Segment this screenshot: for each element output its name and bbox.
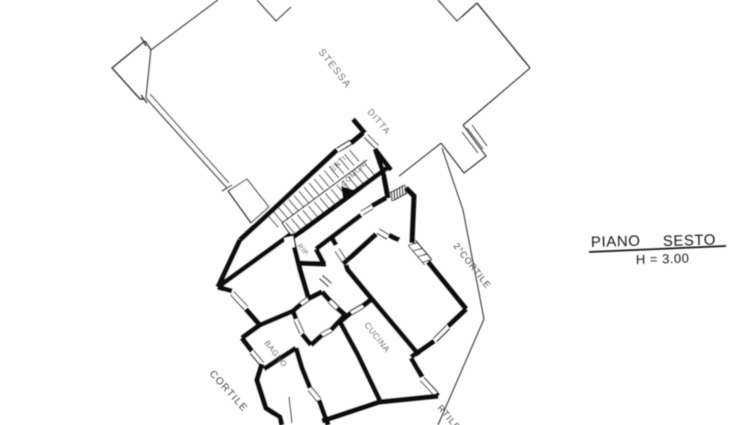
svg-text:H = 3.00: H = 3.00 [636,251,690,267]
svg-text:PIANO: PIANO [591,233,641,251]
